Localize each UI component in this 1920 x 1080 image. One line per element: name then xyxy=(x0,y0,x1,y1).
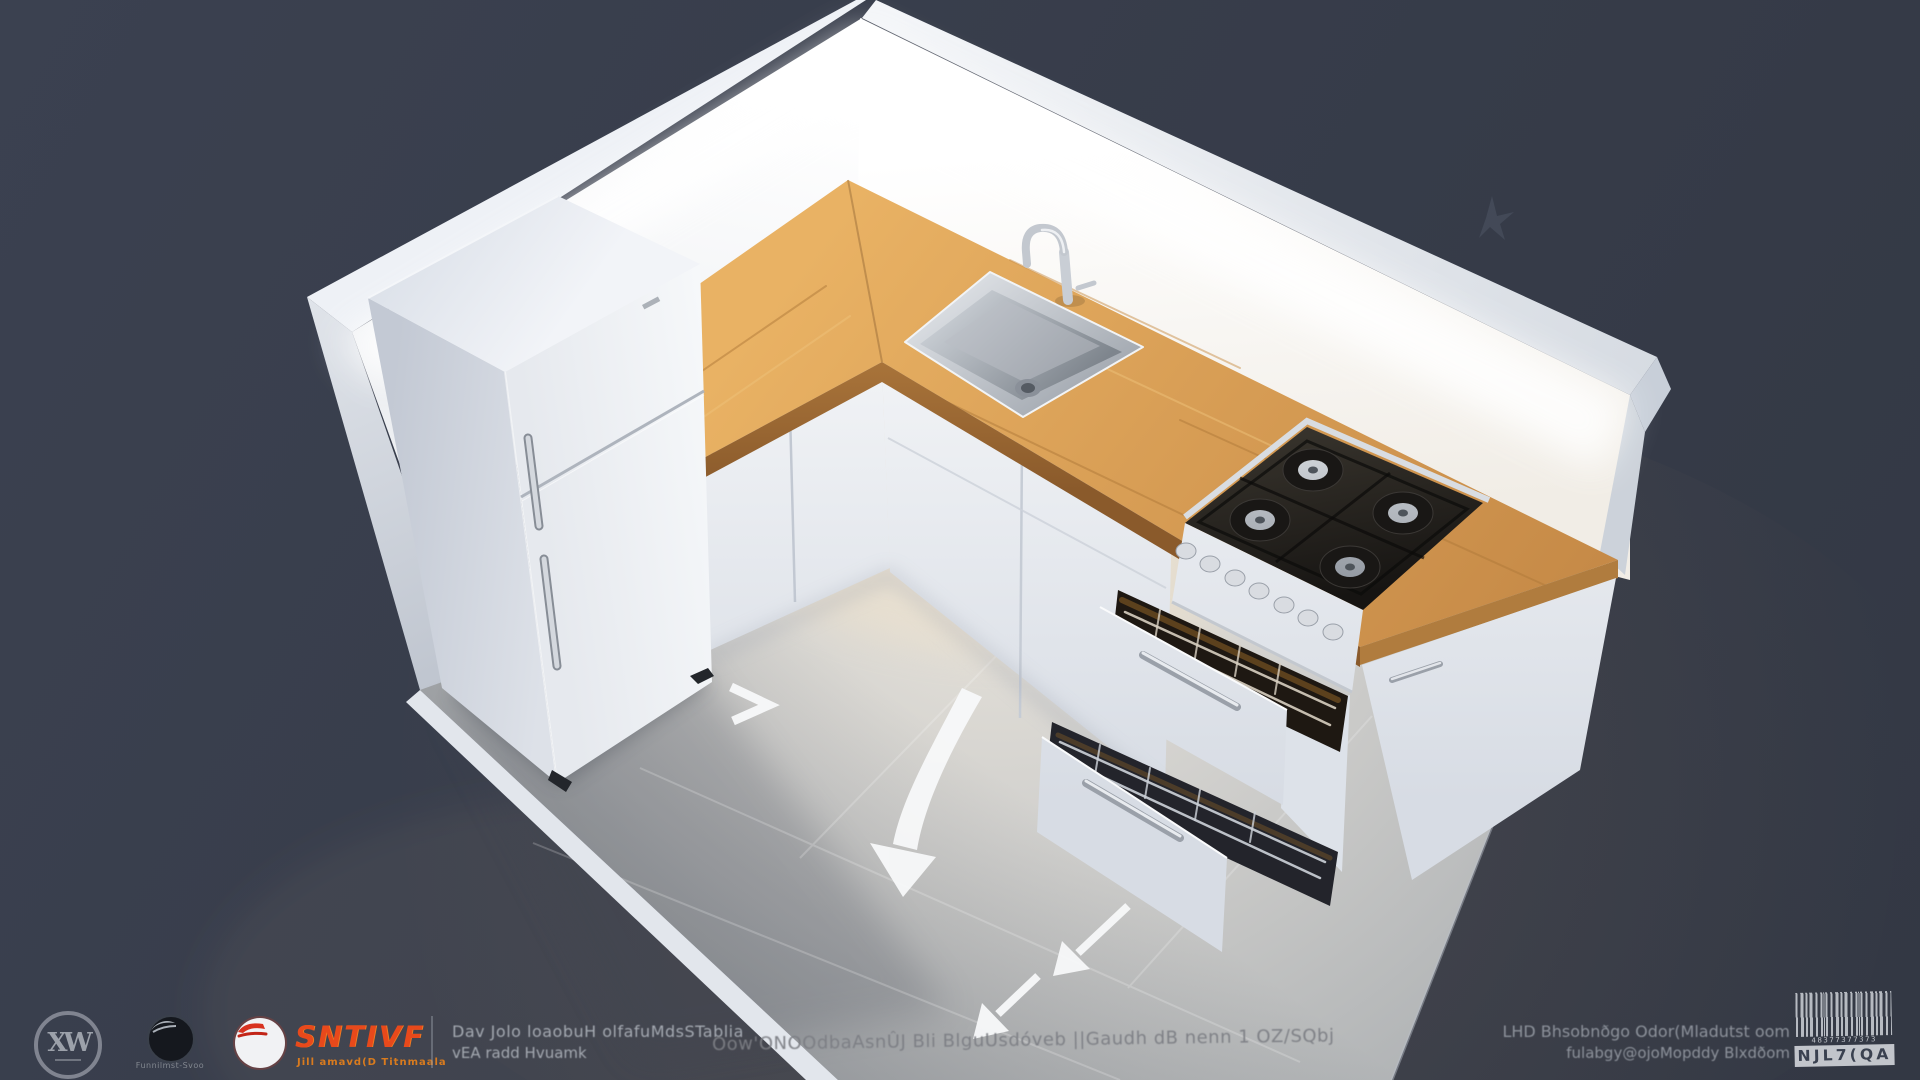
credit-right-line2: fulabgy@ojoMopddy Blxdðom xyxy=(1470,1044,1790,1062)
logo-monogram: XW xyxy=(47,1030,88,1056)
logo3-sled-icon xyxy=(235,1018,269,1042)
credit-right-line1: LHD Bhsobnðgo Odor(Mladutst oom xyxy=(1470,1022,1790,1041)
watermark-divider xyxy=(431,1016,433,1068)
barcode: 48377377373 NJL7(QA xyxy=(1795,991,1893,1067)
brand-wordmark: SNTIVF xyxy=(295,1020,425,1054)
credit-left-line2: vEA radd Hvuamk xyxy=(452,1044,744,1062)
barcode-glyphs: NJL7(QA xyxy=(1794,1044,1894,1067)
credit-text-left: Dav Jolo loaobuH olfafuMdsSTablia vEA ra… xyxy=(452,1022,744,1062)
credit-left-line1: Dav Jolo loaobuH olfafuMdsSTablia xyxy=(452,1022,744,1041)
kitchen-render-scene: XW Funnilmst-Svoo SNTIVF Jill amavd(D Ti… xyxy=(0,0,1920,1080)
watermark-logo-ring: XW xyxy=(34,1011,102,1079)
logo2-swoosh-icon xyxy=(149,1017,179,1037)
barcode-bars xyxy=(1795,991,1892,1037)
watermark-logo-disc xyxy=(147,1015,195,1063)
watermark-logo-badge xyxy=(235,1018,285,1068)
brand-tagline: Jill amavd(D Titnmaala xyxy=(297,1057,447,1068)
logo2-caption: Funnilmst-Svoo xyxy=(120,1061,220,1070)
kitchen-render-svg xyxy=(0,0,1920,1080)
logo-monogram-rule xyxy=(55,1059,81,1061)
credit-text-right: LHD Bhsobnðgo Odor(Mladutst oom fulabgy@… xyxy=(1470,1022,1790,1062)
